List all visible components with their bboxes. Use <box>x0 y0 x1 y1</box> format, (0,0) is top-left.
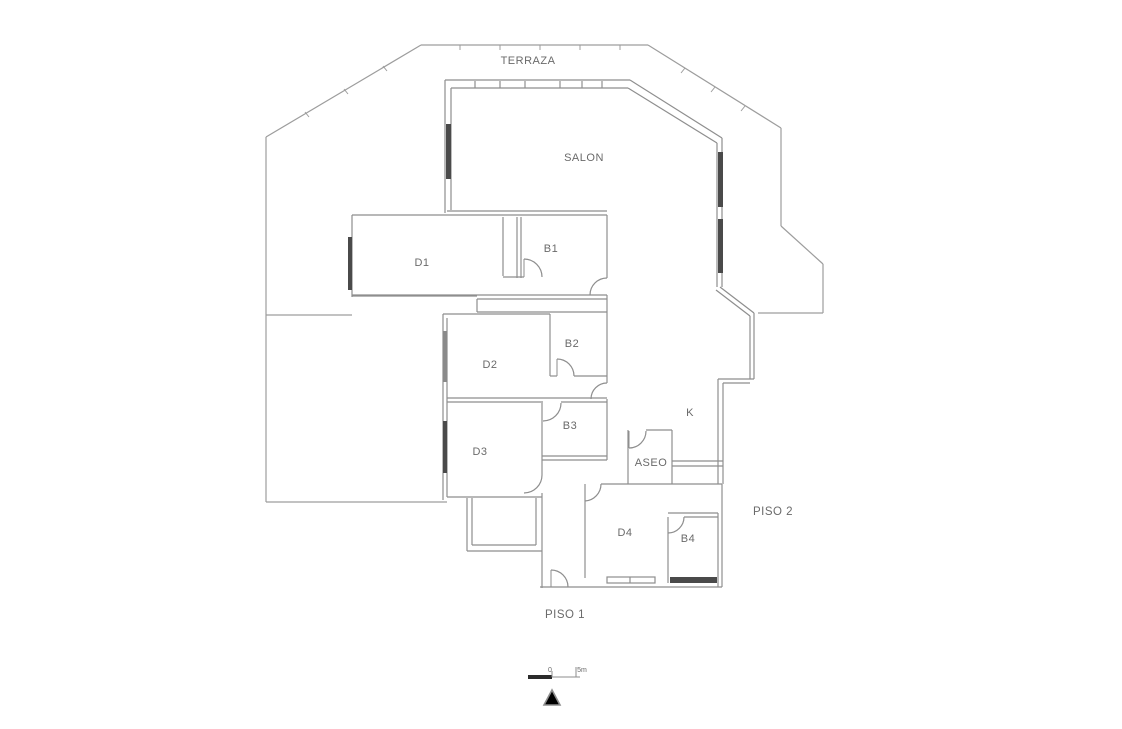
room-label-d1: D1 <box>414 257 429 269</box>
door-entrance <box>551 570 568 587</box>
scale-bar: 0 5m <box>528 667 587 679</box>
scale-bar-solid-segment <box>528 675 552 679</box>
door-d4 <box>585 484 601 501</box>
window-salon-right-2 <box>718 219 723 273</box>
floor-plan-drawing: TERRAZA SALON D1 B1 D2 B2 D3 B3 K ASEO D… <box>0 0 1122 729</box>
room-label-k: K <box>686 407 694 419</box>
floor-plan-page: TERRAZA SALON D1 B1 D2 B2 D3 B3 K ASEO D… <box>0 0 1122 729</box>
room-label-terraza: TERRAZA <box>501 55 556 67</box>
door-b2 <box>557 359 574 376</box>
room-label-aseo: ASEO <box>635 457 668 469</box>
door-b3 <box>543 403 561 421</box>
room-labels: TERRAZA SALON D1 B1 D2 B2 D3 B3 K ASEO D… <box>414 55 793 621</box>
floor-label-piso2: PISO 2 <box>753 506 793 518</box>
room-label-salon: SALON <box>564 152 604 164</box>
door-salon-hall <box>590 278 607 295</box>
window-d1 <box>348 237 352 290</box>
window-d3 <box>443 421 447 473</box>
door-hall-kitchen <box>591 383 607 399</box>
room-label-b1: B1 <box>544 243 558 255</box>
room-label-d4: D4 <box>617 527 632 539</box>
north-arrow-icon <box>544 690 560 705</box>
room-label-d3: D3 <box>472 446 487 458</box>
apartment-walls <box>352 80 754 588</box>
window-salon-left <box>446 124 451 179</box>
door-arcs <box>524 259 684 587</box>
scale-bar-line <box>552 667 580 677</box>
room-label-d2: D2 <box>482 359 497 371</box>
window-salon-right-1 <box>718 152 723 207</box>
room-label-b3: B3 <box>563 420 577 432</box>
window-d2 <box>443 331 447 382</box>
door-b1 <box>524 259 542 277</box>
door-aseo <box>629 431 646 448</box>
door-d3 <box>524 475 542 493</box>
scale-bar-end-label: 5m <box>577 667 587 674</box>
floor-label-piso1: PISO 1 <box>545 609 585 621</box>
door-b4 <box>668 517 684 533</box>
scale-bar-zero-label: 0 <box>548 667 552 674</box>
room-label-b2: B2 <box>565 338 579 350</box>
window-b4 <box>670 577 717 583</box>
room-label-b4: B4 <box>681 533 695 545</box>
